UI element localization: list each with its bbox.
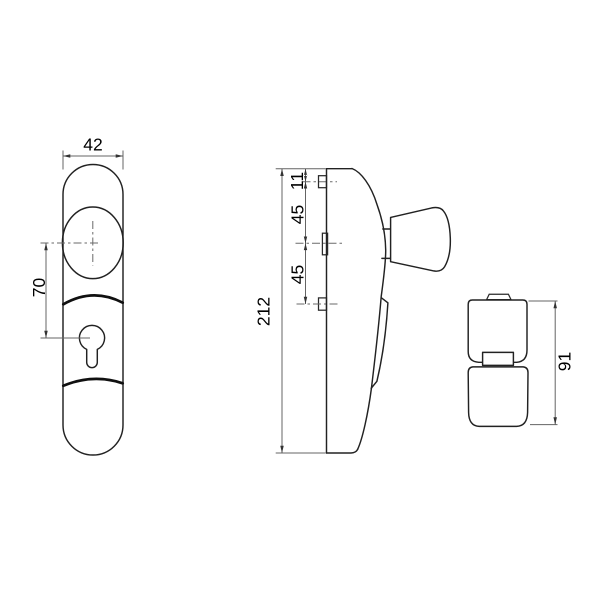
front-plate-outline xyxy=(63,165,123,456)
dim-45-top-label: 45 xyxy=(288,205,308,224)
dim-212-label: 212 xyxy=(254,297,274,326)
dim-91-label: 91 xyxy=(555,352,575,371)
knob-cap-front xyxy=(468,367,528,427)
knob-detail-view: 91 xyxy=(468,294,574,426)
dim-91-extension-lines xyxy=(529,301,558,425)
knob-top-tab xyxy=(487,294,511,299)
dim-42-label: 42 xyxy=(83,135,102,155)
side-view: 212 11 45 45 xyxy=(254,169,451,454)
mid-band-top-edge xyxy=(63,295,122,304)
dimension-chain-11-45-45: 11 45 45 xyxy=(287,169,308,304)
dimension-91: 91 xyxy=(529,301,575,425)
side-plate-bottom-edge xyxy=(327,449,358,453)
knob-neck-front xyxy=(483,352,514,365)
mid-band-bottom-edge xyxy=(63,379,122,386)
dim-45-bottom-label: 45 xyxy=(288,265,308,284)
front-view: 42 70 xyxy=(29,135,123,456)
dimension-70: 70 xyxy=(29,243,90,338)
technical-drawing-canvas: 42 70 21 xyxy=(0,0,600,600)
cylinder-keyhole xyxy=(79,325,104,367)
knob-cap-side xyxy=(391,208,451,272)
side-plate-front-face xyxy=(352,169,386,450)
dim-70-label: 70 xyxy=(29,278,49,298)
dim-11-label: 11 xyxy=(287,172,307,190)
technical-drawing: 42 70 21 xyxy=(0,0,600,600)
